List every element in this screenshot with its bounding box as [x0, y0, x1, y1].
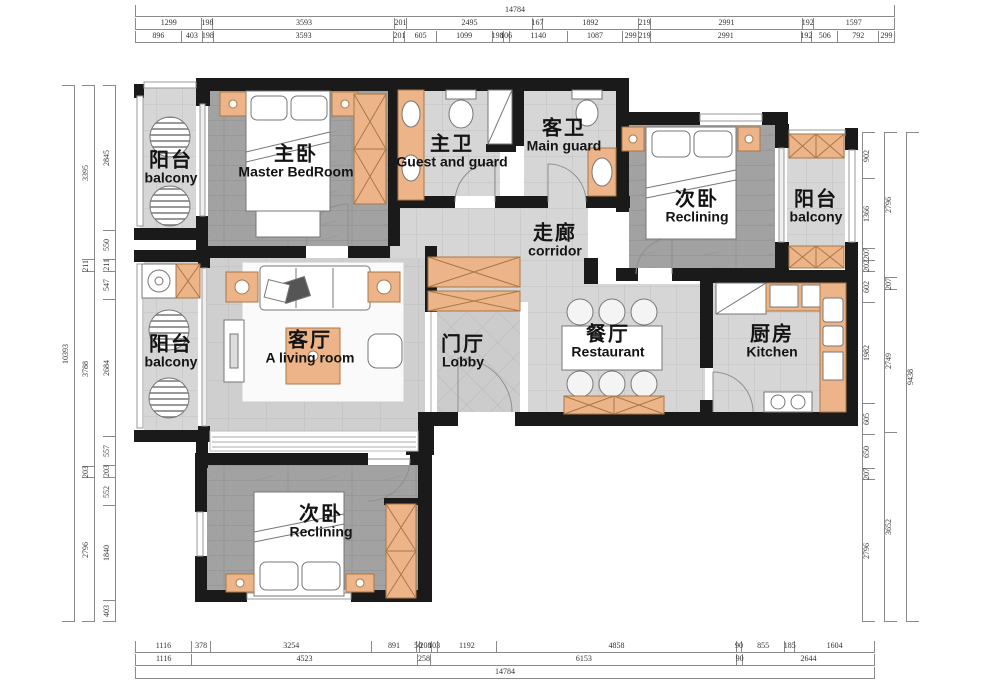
dim-bottom-row1: 1116378325489150208103119248589085518516… [135, 641, 875, 653]
dimension-segment: 211 [82, 259, 95, 271]
dimension-segment: 855 [741, 641, 784, 653]
dimension-value: 2644 [800, 655, 816, 663]
dimension-value: 219 [639, 19, 651, 27]
dimension-value: 550 [103, 239, 111, 251]
dimension-value: 207 [863, 248, 871, 260]
dimension-value: 403 [186, 32, 198, 40]
dimension-segment: 378 [191, 641, 211, 653]
dimension-value: 3395 [82, 165, 90, 181]
kitchen-sink [823, 298, 843, 322]
dimension-value: 605 [415, 32, 427, 40]
dining-table [562, 326, 662, 370]
dimension-value: 6153 [576, 655, 592, 663]
dimension-value: 650 [863, 446, 871, 458]
dimension-segment: 1604 [794, 641, 875, 653]
dimension-value: 1366 [863, 206, 871, 222]
dimension-value: 1192 [459, 642, 475, 650]
pillow [251, 96, 287, 120]
dimension-segment: 201 [393, 31, 404, 43]
dimension-segment: 547 [103, 271, 116, 300]
dimension-segment: 2796 [884, 132, 897, 277]
armchair [150, 117, 190, 157]
dimension-segment: 3395 [82, 85, 95, 259]
dimension-value: 198 [201, 19, 213, 27]
dim-right-outer: 9438 [906, 132, 919, 622]
dimension-segment: 219 [638, 18, 650, 30]
pillow [302, 562, 340, 590]
dimension-value: 4858 [608, 642, 624, 650]
dim-bottom-row2: 111645232586153902644 [135, 654, 875, 666]
dimension-segment: 3254 [210, 641, 371, 653]
dimension-value: 1299 [161, 19, 177, 27]
dimension-segment: 605 [404, 31, 435, 43]
dining-chair [599, 299, 625, 325]
dimension-value: 258 [418, 655, 430, 663]
dimension-value: 547 [103, 279, 111, 291]
dimension-value: 90 [736, 655, 744, 663]
slider-door [200, 104, 205, 216]
dimension-value: 552 [103, 486, 111, 498]
kitchen-sink [823, 326, 843, 346]
dimension-segment: 192 [801, 31, 812, 43]
dimension-value: 403 [103, 605, 111, 617]
dimension-value: 1140 [530, 32, 546, 40]
dimension-value: 14784 [495, 668, 515, 676]
dimension-value: 2796 [863, 543, 871, 559]
armchair [149, 378, 189, 418]
dimension-segment: 2684 [103, 299, 116, 436]
bay-window [210, 431, 418, 451]
dimension-value: 1087 [587, 32, 603, 40]
dimension-segment: 1840 [103, 505, 116, 599]
appliance [823, 352, 843, 380]
dimension-value: 106 [500, 32, 512, 40]
dimension-value: 103 [428, 642, 440, 650]
dimension-value: 203 [103, 465, 111, 477]
dimension-segment: 1597 [813, 18, 895, 30]
floor-lobby [437, 302, 520, 412]
dimension-value: 4523 [296, 655, 312, 663]
dimension-segment: 201 [394, 18, 405, 30]
dimension-value: 506 [819, 32, 831, 40]
dimension-segment: 207 [862, 468, 875, 479]
dimension-segment: 14784 [135, 667, 875, 679]
armchair [149, 310, 189, 350]
dimension-value: 891 [388, 642, 400, 650]
dimension-value: 896 [152, 32, 164, 40]
dimension-value: 192 [800, 32, 812, 40]
dim-bottom-total: 14784 [135, 667, 875, 679]
dimension-value: 855 [757, 642, 769, 650]
dimension-value: 605 [863, 413, 871, 425]
dimension-segment: 185 [784, 641, 794, 653]
dining-chair [631, 299, 657, 325]
dimension-value: 211 [82, 260, 90, 272]
dimension-segment: 1140 [509, 31, 567, 43]
dimension-value: 2749 [885, 353, 893, 369]
dimension-value: 3652 [885, 519, 893, 535]
dimension-value: 299 [625, 32, 637, 40]
dimension-value: 3593 [296, 19, 312, 27]
pillow [694, 131, 732, 157]
dimension-value: 1116 [156, 642, 171, 650]
dimension-segment: 198 [202, 31, 213, 43]
dim-left-mid: 339521137882032796 [82, 85, 95, 622]
dimension-segment: 896 [135, 31, 181, 43]
armchair [150, 186, 190, 226]
dimension-segment: 1099 [436, 31, 492, 43]
dimension-segment: 299 [622, 31, 638, 43]
dimension-segment: 403 [181, 31, 202, 43]
dimension-segment: 2845 [103, 85, 116, 230]
dimension-value: 201 [393, 32, 405, 40]
dimension-segment: 2796 [82, 477, 95, 622]
bed-bench [256, 211, 320, 237]
dim-top-row2: 8964031983593201605109919810611401087299… [135, 31, 895, 43]
dim-top-row1: 129919835932012495167189221929911921597 [135, 18, 895, 30]
dimension-segment: 6153 [430, 654, 736, 666]
toilet-tank [572, 90, 602, 99]
dimension-value: 3788 [82, 361, 90, 377]
dimension-segment: 1892 [542, 18, 638, 30]
dimension-value: 203 [82, 466, 90, 478]
window [197, 512, 203, 556]
dimension-segment: 203 [103, 465, 116, 476]
dimension-value: 198 [202, 32, 214, 40]
toilet [449, 100, 473, 128]
dimension-value: 90 [735, 642, 743, 650]
dimension-segment: 1116 [135, 641, 191, 653]
dimension-segment: 792 [837, 31, 878, 43]
dimension-segment: 2749 [884, 289, 897, 432]
dimension-segment: 258 [417, 654, 431, 666]
dimension-value: 299 [881, 32, 893, 40]
dimension-segment: 3593 [212, 18, 394, 30]
dimension-segment: 552 [103, 477, 116, 506]
dimension-value: 1840 [103, 545, 111, 561]
dimension-segment: 4858 [496, 641, 736, 653]
dimension-segment: 211 [103, 259, 116, 271]
dimension-segment: 299 [878, 31, 895, 43]
dimension-segment: 14784 [135, 5, 895, 17]
window [700, 114, 762, 121]
dimension-segment: 203 [82, 466, 95, 477]
dim-right-inner: 902136620720260219826056502072796 [862, 132, 875, 622]
dimension-segment: 2796 [862, 479, 875, 622]
dimension-value: 1099 [456, 32, 472, 40]
toilet [576, 100, 598, 126]
dimension-segment: 2991 [650, 31, 801, 43]
dimension-segment: 3788 [82, 271, 95, 466]
dimension-value: 201 [395, 19, 407, 27]
dimension-segment: 219 [638, 31, 650, 43]
tv [230, 334, 238, 368]
dimension-value: 1982 [863, 345, 871, 361]
dining-chair [631, 371, 657, 397]
dimension-segment: 2991 [650, 18, 802, 30]
floor-plan-page: 阳台 balcony 主卧 Master BedRoom 主卫 Guest an… [0, 0, 1000, 688]
dimension-segment: 602 [862, 271, 875, 302]
dimension-value: 2684 [103, 360, 111, 376]
sink [402, 101, 420, 127]
armchair [368, 334, 402, 368]
dimension-segment: 2644 [742, 654, 875, 666]
dimension-value: 2991 [718, 19, 734, 27]
pillow [291, 96, 327, 120]
dimension-value: 211 [103, 259, 111, 271]
dimension-value: 3593 [296, 32, 312, 40]
dimension-segment: 1192 [437, 641, 497, 653]
dimension-segment: 902 [862, 132, 875, 178]
dimension-segment: 506 [811, 31, 837, 43]
dimension-value: 557 [103, 445, 111, 457]
pillow [260, 562, 298, 590]
dimension-value: 792 [852, 32, 864, 40]
dimension-value: 1604 [827, 642, 843, 650]
dimension-value: 1597 [846, 19, 862, 27]
sink [402, 155, 420, 181]
dimension-segment: 4523 [191, 654, 416, 666]
dimension-value: 207 [863, 468, 871, 480]
dimension-segment: 1366 [862, 178, 875, 248]
fridge [770, 285, 798, 307]
floor-plan-canvas [0, 0, 1000, 688]
dimension-segment: 198 [201, 18, 212, 30]
dimension-value: 2495 [461, 19, 477, 27]
dimension-segment: 9438 [906, 132, 919, 622]
dimension-segment: 557 [103, 436, 116, 465]
dim-left-inner: 284555021154726845572035521840403 [103, 85, 116, 622]
dimension-value: 2991 [718, 32, 734, 40]
dining-chair [567, 299, 593, 325]
dimension-value: 202 [863, 260, 871, 272]
window [849, 150, 855, 242]
dimension-value: 602 [863, 281, 871, 293]
dim-left-outer: 10393 [62, 85, 75, 622]
dimension-value: 2845 [103, 150, 111, 166]
washing-machine [142, 264, 176, 298]
dimension-value: 902 [863, 150, 871, 162]
dining-chair [599, 371, 625, 397]
dimension-segment: 2495 [406, 18, 533, 30]
dimension-segment: 207 [884, 277, 897, 289]
dimension-segment: 1087 [567, 31, 622, 43]
dimension-value: 167 [532, 19, 544, 27]
dimension-value: 207 [885, 278, 893, 290]
dimension-segment: 3593 [213, 31, 394, 43]
dimension-segment: 192 [802, 18, 813, 30]
dimension-segment: 1982 [862, 302, 875, 403]
dimension-segment: 1116 [135, 654, 191, 666]
dimension-segment: 403 [103, 600, 116, 622]
dimension-segment: 10393 [62, 85, 75, 622]
slider-door [202, 268, 207, 426]
dimension-segment: 605 [862, 403, 875, 434]
dimension-value: 2796 [885, 197, 893, 213]
dimension-value: 185 [784, 642, 796, 650]
dimension-segment: 650 [862, 434, 875, 468]
dimension-value: 192 [802, 19, 814, 27]
sink [592, 158, 612, 186]
dimension-segment: 891 [371, 641, 416, 653]
dimension-segment: 202 [862, 260, 875, 271]
window [137, 96, 143, 226]
dim-top-total: 14784 [135, 5, 895, 17]
dimension-segment: 207 [862, 248, 875, 259]
dimension-segment: 1299 [135, 18, 201, 30]
pillow [652, 131, 690, 157]
dimension-value: 378 [195, 642, 207, 650]
dim-right-mid: 279620727493652 [884, 132, 897, 622]
slider-door [779, 148, 784, 242]
dimension-value: 1892 [582, 19, 598, 27]
dimension-value: 3254 [283, 642, 299, 650]
dining-chair [567, 371, 593, 397]
dimension-segment: 3652 [884, 432, 897, 622]
dimension-value: 9438 [907, 369, 915, 385]
dimension-value: 14784 [505, 6, 525, 14]
dimension-value: 10393 [62, 344, 70, 364]
dimension-segment: 550 [103, 230, 116, 259]
dimension-value: 2796 [82, 542, 90, 558]
window [144, 82, 196, 88]
dimension-value: 219 [639, 32, 651, 40]
toilet-tank [446, 90, 476, 99]
dimension-segment: 167 [532, 18, 541, 30]
dimension-value: 1116 [156, 655, 171, 663]
